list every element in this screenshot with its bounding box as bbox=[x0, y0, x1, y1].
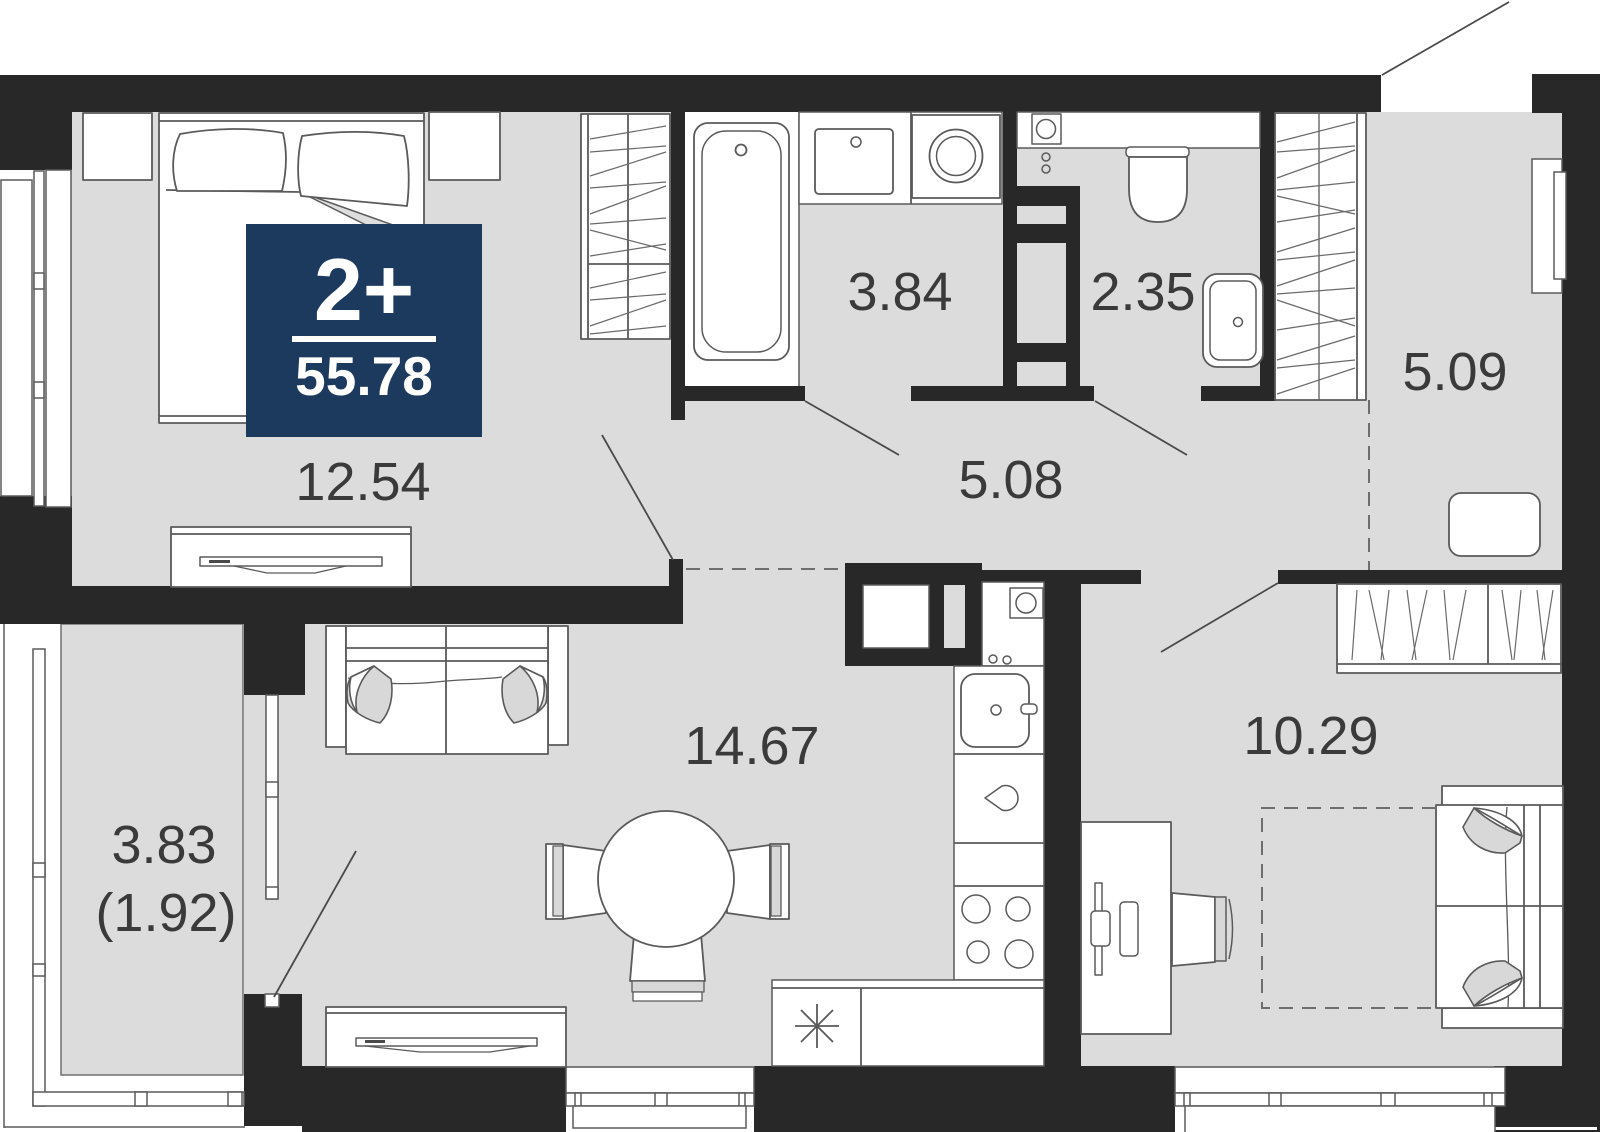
svg-text:10.29: 10.29 bbox=[1243, 706, 1378, 766]
svg-text:3.83: 3.83 bbox=[111, 815, 216, 875]
svg-text:2+: 2+ bbox=[314, 240, 414, 339]
svg-text:12.54: 12.54 bbox=[295, 452, 430, 512]
svg-text:(1.92): (1.92) bbox=[95, 883, 236, 943]
svg-text:55.78: 55.78 bbox=[295, 345, 433, 407]
svg-text:5.08: 5.08 bbox=[958, 450, 1063, 510]
svg-text:2.35: 2.35 bbox=[1090, 262, 1195, 322]
svg-text:14.67: 14.67 bbox=[684, 716, 819, 776]
svg-text:3.84: 3.84 bbox=[847, 262, 952, 322]
svg-text:5.09: 5.09 bbox=[1402, 342, 1507, 402]
